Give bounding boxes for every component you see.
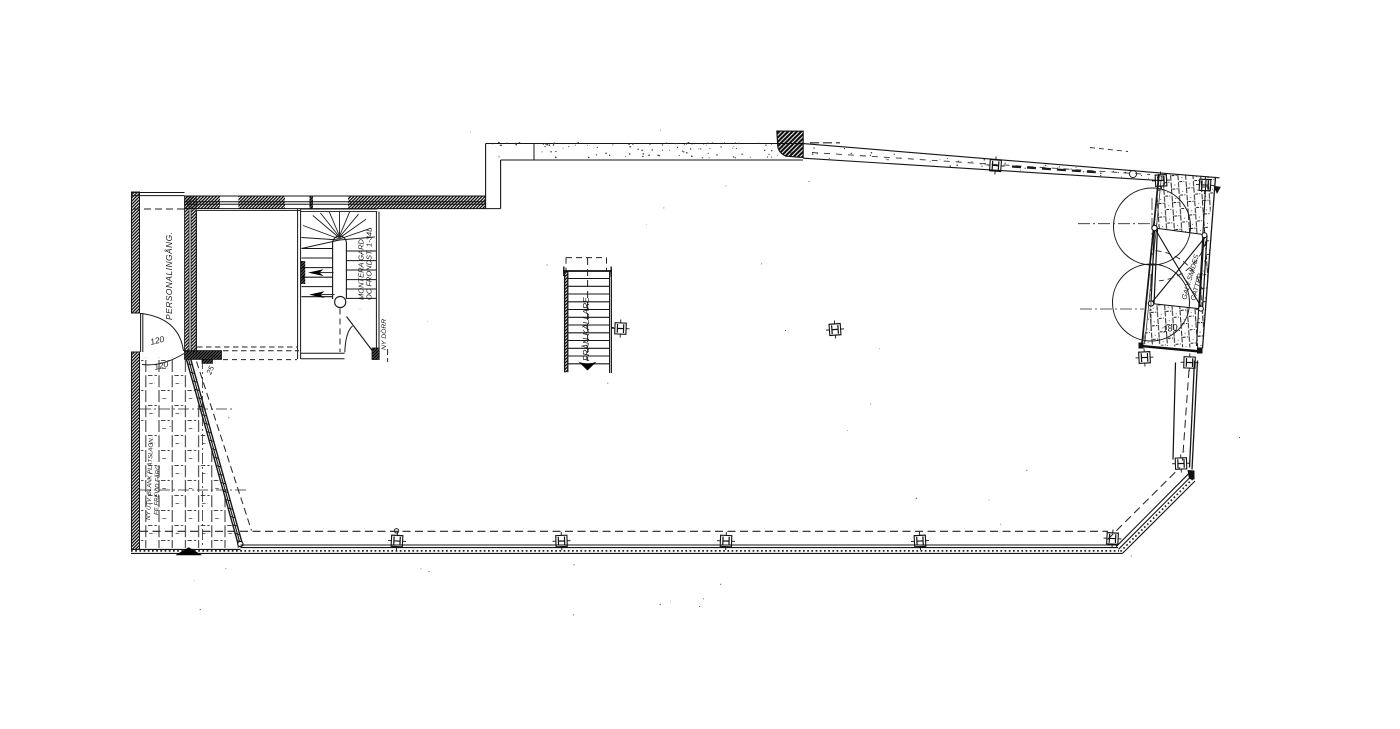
svg-text:FRÅN KÄLLARE: FRÅN KÄLLARE (581, 297, 591, 361)
svg-text:NY DÖRR: NY DÖRR (380, 319, 388, 350)
svg-text:PERSONALINGÅNG.: PERSONALINGÅNG. (164, 232, 174, 320)
